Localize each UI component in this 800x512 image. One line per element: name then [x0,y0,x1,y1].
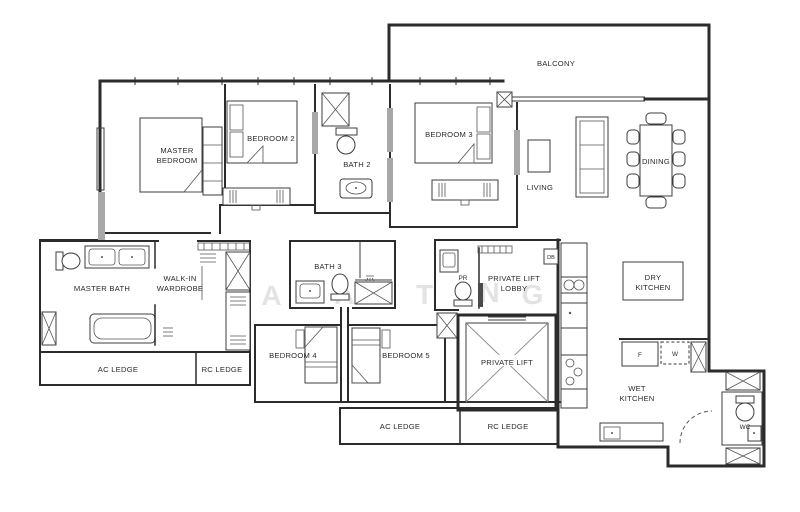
toilet-icon [332,274,348,294]
coffee-table-icon [528,140,550,172]
chair-icon [673,174,685,188]
door-leaf-icon [478,283,483,307]
sink-drain-dot [569,312,571,314]
watermark-letter: T [416,279,434,310]
label-dry-kitchen: DRY [645,273,662,282]
sink-drain-dot [753,432,755,434]
label-bedroom3: BEDROOM 3 [425,130,473,139]
label-bath2: BATH 2 [343,160,371,169]
sofa-icon [576,117,608,197]
floor-plan-svg: A A T N G [0,0,800,512]
label-master-bedroom: BEDROOM [157,156,198,165]
label-rc-ledge-left: RC LEDGE [202,365,243,374]
bedroom3-furniture [415,103,498,205]
side-table-icon [382,330,390,348]
toilet-tank-icon [336,128,357,135]
chair-icon [673,152,685,166]
bath3-fixtures [296,274,392,304]
sink-drain-dot [355,187,357,189]
label-lift-lobby: PRIVATE LIFT [488,274,540,283]
toilet-icon [455,282,471,300]
label-wc: WC [740,424,751,431]
sink-drain-dot [101,256,103,258]
chair-icon [673,130,685,144]
toilet-tank-icon [331,294,349,300]
closet-rail-hatch [204,243,244,250]
label-bedroom4: BEDROOM 4 [269,351,317,360]
label-pr: PR [459,275,468,282]
label-washer: W [672,351,679,358]
label-walkin-wardrobe: WARDROBE [157,284,203,293]
wall-gray-br3-right [514,130,520,175]
closet-rail-hatch [482,246,506,253]
lift-door-icon [488,317,526,320]
label-dining: DINING [642,157,670,166]
floor-plan-canvas: A A T N G [0,0,800,512]
master-bath-fixtures [42,241,155,345]
prep-sink-icon [561,303,587,328]
toilet-tank-icon [736,396,754,403]
label-balcony: BALCONY [537,59,575,68]
bed-icon [352,328,380,383]
dresser-notch [461,200,469,205]
entrance-door-arc [680,411,712,443]
chair-icon [627,152,639,166]
side-table-icon [296,330,304,348]
label-wet-kitchen: WET [628,384,646,393]
chair-icon [627,174,639,188]
label-bedroom2: BEDROOM 2 [247,134,295,143]
toilet-icon [62,253,80,269]
bedroom2-furniture [223,101,297,210]
label-master-bath: MASTER BATH [74,284,130,293]
label-living: LIVING [527,183,553,192]
sink-drain-dot [309,290,311,292]
label-bath3: BATH 3 [314,262,342,271]
label-rc-ledge-bottom: RC LEDGE [488,422,529,431]
label-dry-kitchen: KITCHEN [635,283,670,292]
label-db: DB [547,255,555,261]
wall-gray-bath2-right-1 [387,108,393,152]
label-wet-kitchen: KITCHEN [619,394,654,403]
chair-icon [646,113,666,124]
label-bedroom5: BEDROOM 5 [382,351,430,360]
wardrobe-icon [203,127,222,195]
label-master-bedroom: MASTER [160,146,193,155]
label-private-lift: PRIVATE LIFT [481,358,533,367]
label-ac-ledge-left: AC LEDGE [98,365,138,374]
wall-gray-bath2-left [312,112,318,154]
counter-bottom [600,423,663,441]
toilet-icon [736,403,754,421]
chair-icon [627,130,639,144]
bath2-fixtures [322,93,372,198]
wall-gray-bath2-right-2 [387,158,393,202]
sink-drain-dot [611,432,613,434]
shelf-lines [200,254,216,262]
chair-icon [646,197,666,208]
label-ac-ledge-bottom: AC LEDGE [380,422,420,431]
wc-fixtures [722,372,762,464]
closet-rail-icon [478,246,512,253]
toilet-tank-icon [454,300,472,306]
wall-gray-left [98,192,105,240]
closet-rail-icon [198,243,250,250]
kitchen-fixtures [561,243,712,443]
toilet-icon [337,136,355,154]
watermark-letter: A [261,280,282,311]
label-lift-lobby: LOBBY [501,284,528,293]
label-walkin-wardrobe: WALK-IN [163,274,196,283]
wardrobe-fixtures [163,243,250,350]
sink-drain-dot [131,256,133,258]
shelf-lines [163,328,173,336]
label-fridge: F [638,352,642,359]
